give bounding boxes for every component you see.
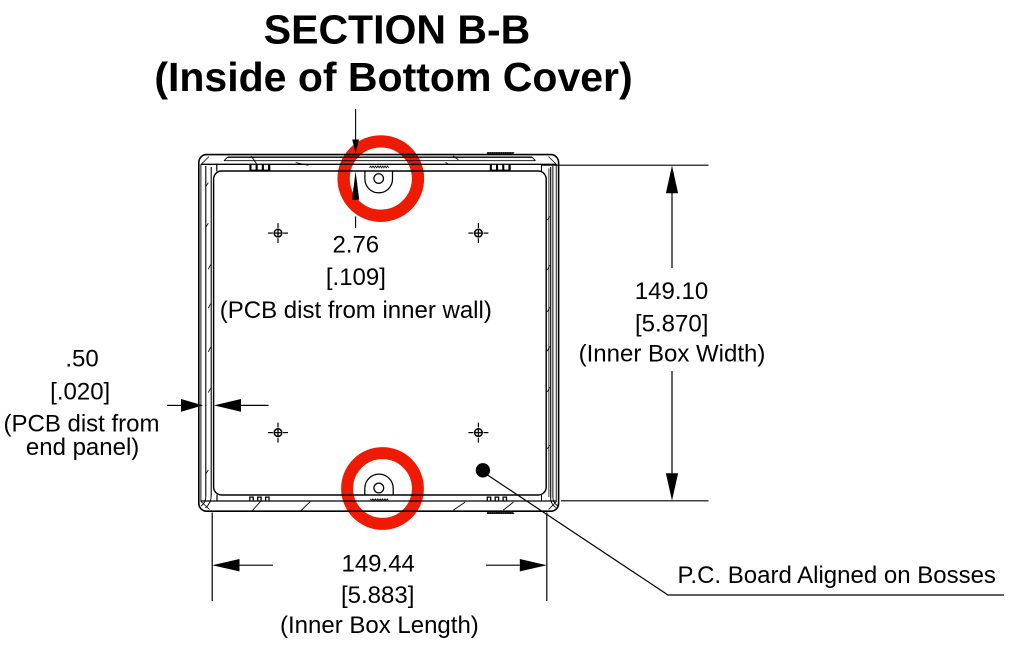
svg-text:[5.883]: [5.883] xyxy=(341,582,414,609)
svg-text:[.020]: [.020] xyxy=(50,379,110,406)
svg-text:2.76: 2.76 xyxy=(332,231,379,258)
svg-text:(PCB dist from inner wall): (PCB dist from inner wall) xyxy=(220,297,492,324)
svg-text:149.44: 149.44 xyxy=(341,551,414,578)
svg-text:end panel): end panel) xyxy=(26,434,139,461)
svg-text:[5.870]: [5.870] xyxy=(635,311,708,338)
svg-text:(Inner Box Length): (Inner Box Length) xyxy=(280,612,479,639)
svg-text:.50: .50 xyxy=(65,346,98,373)
svg-text:(Inner Box Width): (Inner Box Width) xyxy=(579,340,766,367)
svg-text:149.10: 149.10 xyxy=(635,278,708,305)
svg-text:(Inside of Bottom Cover): (Inside of Bottom Cover) xyxy=(154,54,632,100)
svg-text:[.109]: [.109] xyxy=(326,264,386,291)
svg-text:SECTION B-B: SECTION B-B xyxy=(264,6,531,52)
svg-text:P.C. Board Aligned on Bosses: P.C. Board Aligned on Bosses xyxy=(678,562,996,589)
